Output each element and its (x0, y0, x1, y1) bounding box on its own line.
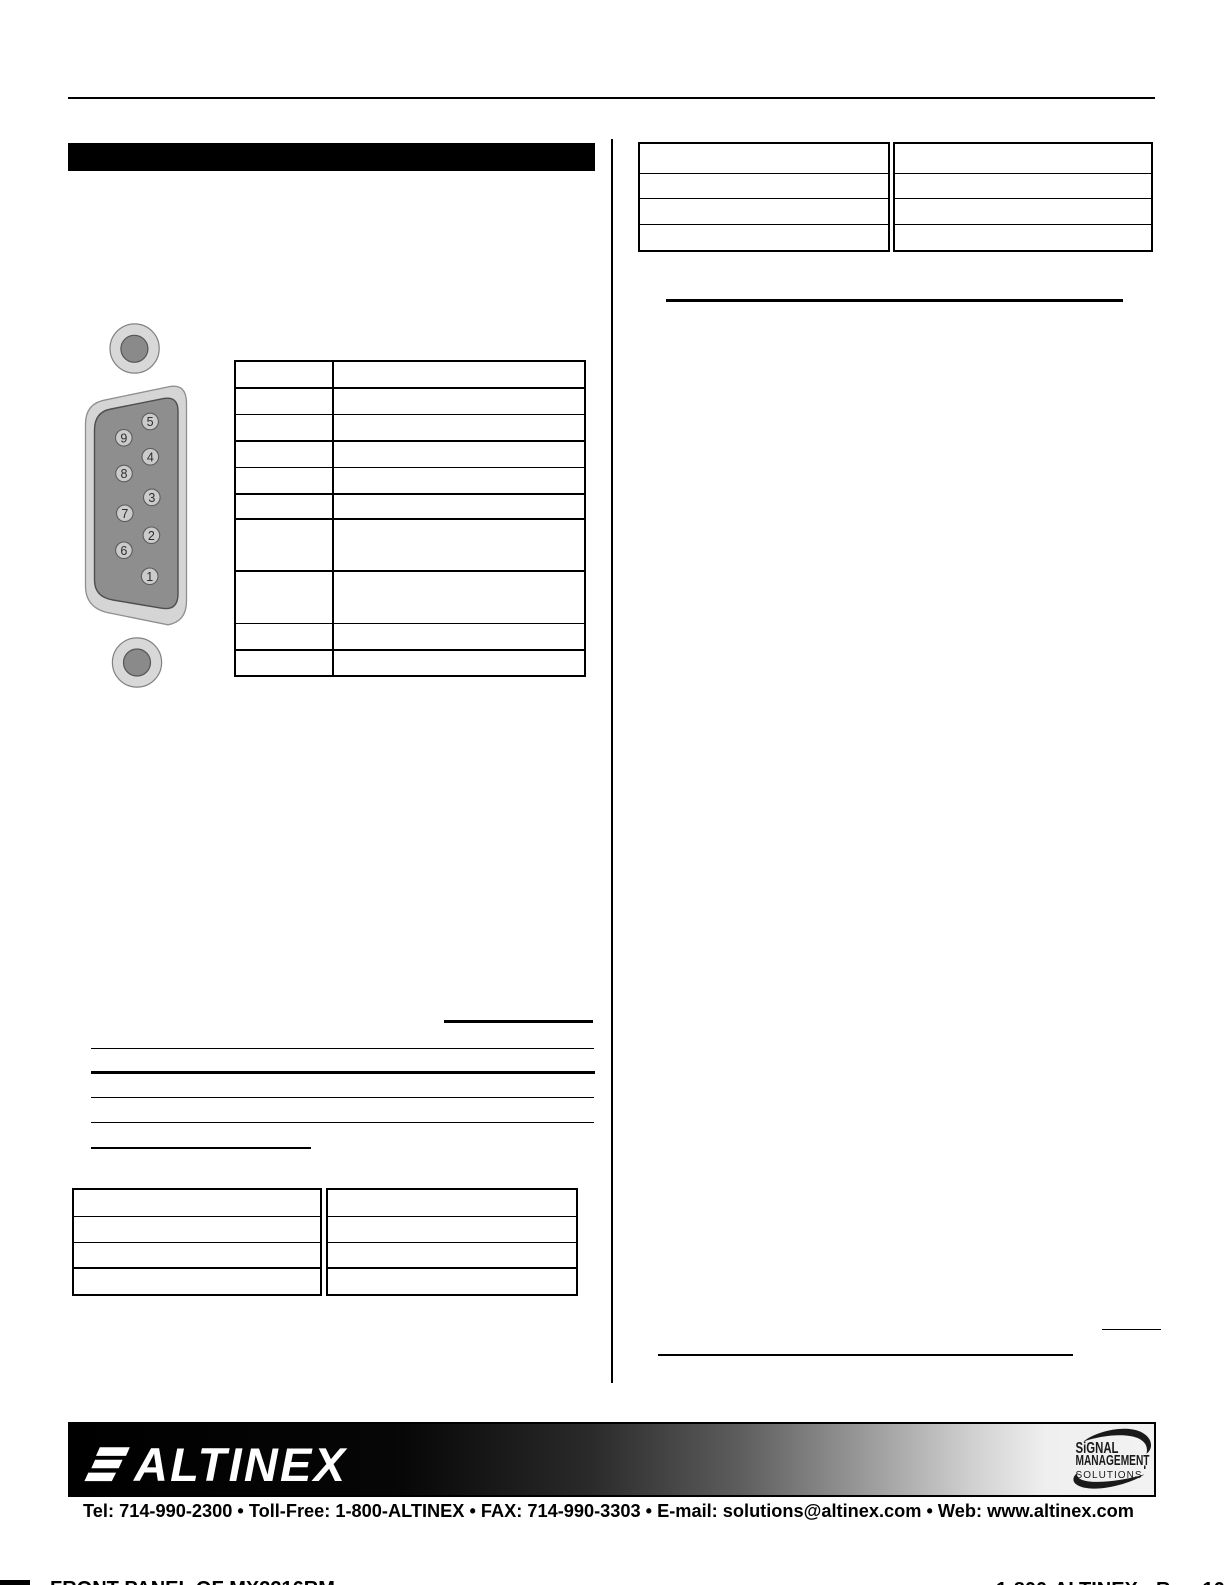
svg-text:6: 6 (120, 544, 127, 558)
svg-text:9: 9 (120, 431, 127, 445)
svg-text:7: 7 (121, 507, 128, 521)
svg-text:5: 5 (147, 415, 154, 429)
svg-text:2: 2 (148, 529, 155, 543)
svg-text:8: 8 (121, 467, 128, 481)
svg-text:3: 3 (148, 491, 155, 505)
svg-text:MANAGEMENT: MANAGEMENT (1076, 1453, 1150, 1469)
svg-text:1: 1 (146, 570, 153, 584)
svg-text:4: 4 (147, 450, 154, 464)
svg-text:ALTINEX: ALTINEX (133, 1438, 348, 1491)
svg-text:SOLUTIONS: SOLUTIONS (1076, 1470, 1142, 1481)
